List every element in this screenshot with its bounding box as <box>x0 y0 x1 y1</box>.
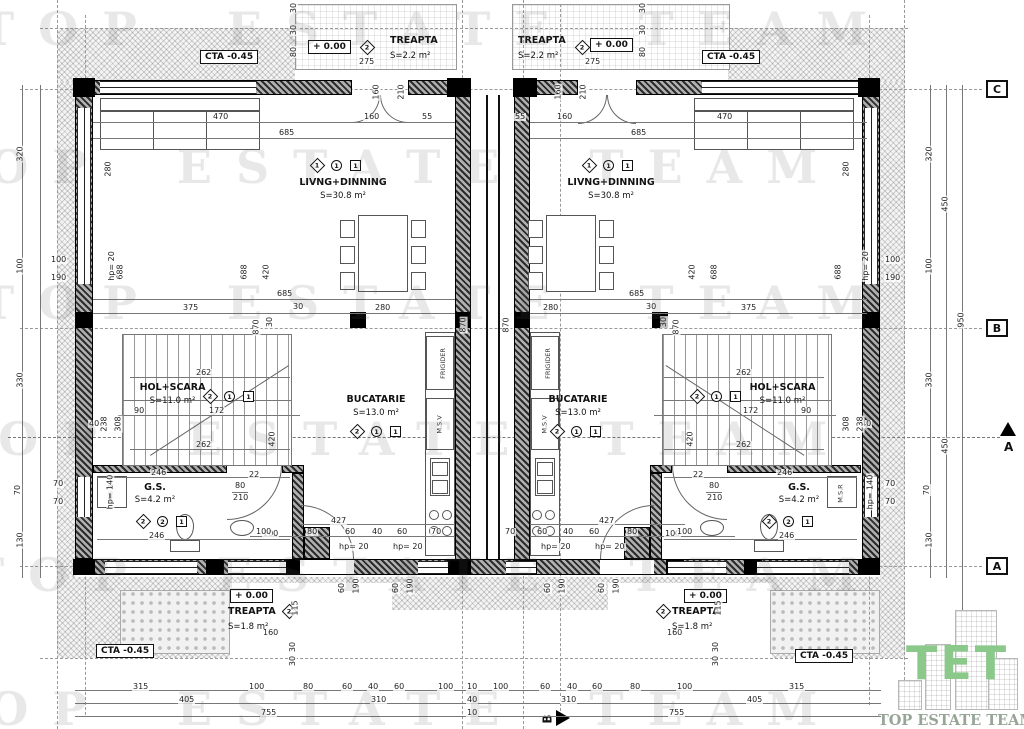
dim: 950 <box>958 311 966 328</box>
room-name-gs: G.S. <box>774 483 824 493</box>
dim: 30 <box>639 2 647 14</box>
dim: 308 <box>115 415 123 432</box>
square-marker: 1 <box>176 516 187 527</box>
chair <box>599 272 614 290</box>
boundary-line <box>40 658 908 659</box>
terrace-paving <box>770 590 880 654</box>
room-name-kitchen: BUCATARIE <box>326 395 426 405</box>
dim: 90 <box>133 407 145 415</box>
column <box>73 559 95 575</box>
room-name-hall: HOL+SCARA <box>735 383 830 393</box>
dim: 30 <box>660 316 668 328</box>
watermark: TOP ESTATE TEAM <box>0 276 891 330</box>
dim: 100 <box>255 528 272 536</box>
dim: 80 <box>234 482 246 490</box>
chair <box>340 272 355 290</box>
section-a-label: A <box>1004 440 1013 454</box>
room-area-living: S=30.8 m² <box>556 192 666 201</box>
chair <box>599 220 614 238</box>
dim: 315 <box>132 683 149 691</box>
dim: 755 <box>668 709 685 717</box>
dim: 60 <box>344 528 356 536</box>
dim: 100 <box>437 683 454 691</box>
dim: 210 <box>706 494 723 502</box>
dim: 70 <box>884 498 896 506</box>
dim: 262 <box>195 369 212 377</box>
sofa-back <box>694 98 854 111</box>
dim: 22 <box>248 471 260 479</box>
diamond-marker: 1 <box>310 158 326 174</box>
square-marker: 1 <box>622 160 633 171</box>
dim: 262 <box>735 441 752 449</box>
dim: 685 <box>628 290 645 298</box>
door-opening <box>300 560 354 574</box>
dim: 22 <box>692 471 704 479</box>
window <box>100 81 256 94</box>
dim: 160 <box>262 629 279 637</box>
room-area-treapta: S=2.2 m² <box>390 52 430 61</box>
window <box>77 477 91 517</box>
washer-label: M.S.R <box>838 484 845 502</box>
dim: 375 <box>182 304 199 312</box>
dim: 55 <box>421 113 433 121</box>
level-label: + 0.00 <box>230 589 273 603</box>
dim: 310 <box>560 696 577 704</box>
dim: 420 <box>269 430 277 447</box>
stove-burner <box>442 510 452 520</box>
room-area-hall: S=11.0 m² <box>735 397 830 406</box>
dim: 688 <box>241 263 249 280</box>
dim: 160 <box>666 629 683 637</box>
dim: 40 <box>88 420 100 428</box>
boundary-line <box>57 0 58 729</box>
diamond-marker: 1 <box>582 158 598 174</box>
dimension-line <box>530 299 867 300</box>
dim: 190 <box>613 577 621 594</box>
dim: 100 <box>676 528 693 536</box>
fridge-label: FRIGIDER <box>545 348 552 379</box>
grid-marker-a: A <box>986 557 1008 575</box>
dim: 870 <box>673 318 681 335</box>
section-a-arrow <box>1000 422 1016 436</box>
window <box>228 561 286 574</box>
dimension-line <box>97 539 290 540</box>
dim: 685 <box>276 290 293 298</box>
dimension-line <box>664 449 824 450</box>
dim: 70 <box>884 480 896 488</box>
window <box>77 108 91 284</box>
dim: 80 <box>629 683 641 691</box>
dimension-line <box>530 536 735 537</box>
dining-table <box>546 215 596 292</box>
section-b-line <box>560 4 561 716</box>
column <box>862 312 880 328</box>
dim: 100 <box>926 257 934 274</box>
section-b-arrow <box>556 710 570 726</box>
dim: 280 <box>843 160 851 177</box>
window <box>418 561 448 574</box>
chair <box>411 220 426 238</box>
column <box>514 312 530 328</box>
circle-marker: 1 <box>571 426 582 437</box>
dim: 280 <box>374 304 391 312</box>
window <box>506 561 536 574</box>
dim: 70 <box>52 498 64 506</box>
window <box>702 81 858 94</box>
room-name-gs: G.S. <box>130 483 180 493</box>
dim: 60 <box>539 683 551 691</box>
dimension-line <box>130 449 290 450</box>
dim: 40 <box>562 528 574 536</box>
dim: 60 <box>396 528 408 536</box>
square-marker: 1 <box>802 516 813 527</box>
circle-marker: 1 <box>371 426 382 437</box>
dim: 30 <box>266 316 274 328</box>
sofa-back <box>100 98 260 111</box>
dim: 160 <box>363 113 380 121</box>
dim: 210 <box>398 83 406 100</box>
dim: hp= 20 <box>392 543 424 551</box>
circle-marker: 2 <box>783 516 794 527</box>
gs-wall <box>282 465 304 473</box>
dim: 60 <box>338 582 346 594</box>
dim: 470 <box>212 113 229 121</box>
dim: 405 <box>746 696 763 704</box>
dim: 100 <box>676 683 693 691</box>
dim: 172 <box>208 407 225 415</box>
dim: 275 <box>584 58 601 66</box>
dim: 55 <box>514 113 526 121</box>
dim: 275 <box>358 58 375 66</box>
dimension-line <box>40 85 41 578</box>
door-opening <box>600 560 654 574</box>
dimension-line <box>530 122 867 123</box>
square-marker: 1 <box>590 426 601 437</box>
dim: 375 <box>740 304 757 312</box>
dim: 30 <box>645 303 657 311</box>
dim: 190 <box>407 577 415 594</box>
dim: 172 <box>742 407 759 415</box>
room-area-kitchen: S=13.0 m² <box>326 409 426 418</box>
dim: 40 <box>466 696 478 704</box>
dim: 450 <box>942 195 950 212</box>
party-wall-line <box>486 95 488 559</box>
dimension-line <box>93 299 455 300</box>
toilet-tank <box>170 540 200 552</box>
dimension-line <box>130 377 290 378</box>
dim: 10 <box>466 683 478 691</box>
dim: 60 <box>598 582 606 594</box>
room-area-gs: S=4.2 m² <box>122 496 188 505</box>
site-hatch <box>57 28 295 82</box>
cta-label: CTA -0.45 <box>96 644 154 658</box>
dimension-line <box>250 536 455 537</box>
column <box>350 312 366 328</box>
sofa <box>100 111 260 150</box>
sink-basin <box>432 462 448 476</box>
dim: 450 <box>942 437 950 454</box>
dimension-line <box>97 477 290 478</box>
dim: 60 <box>591 683 603 691</box>
dim: 115 <box>292 599 300 616</box>
dimension-line <box>118 415 300 416</box>
logo-monogram: TET <box>906 636 1009 690</box>
dim: 160 <box>373 83 381 100</box>
boundary-line <box>40 28 908 29</box>
grid-marker-c: C <box>986 80 1008 98</box>
window <box>668 561 726 574</box>
dim: 246 <box>778 532 795 540</box>
dim: 190 <box>559 577 567 594</box>
room-name-kitchen: BUCATARIE <box>528 395 628 405</box>
dim: 262 <box>735 369 752 377</box>
dim: 40 <box>367 683 379 691</box>
dimension-line <box>530 313 867 314</box>
dim: 100 <box>50 256 67 264</box>
column <box>206 559 224 575</box>
stove-burner <box>429 510 439 520</box>
dim: 70 <box>52 480 64 488</box>
gs-wall <box>650 465 672 473</box>
yard-area <box>392 610 608 658</box>
dim: 330 <box>926 371 934 388</box>
dim: 160 <box>555 83 563 100</box>
dim: 688 <box>711 263 719 280</box>
dim: 30 <box>292 303 304 311</box>
dim: 115 <box>715 599 723 616</box>
square-marker: 1 <box>350 160 361 171</box>
chair <box>411 272 426 290</box>
dim: 100 <box>492 683 509 691</box>
dim: 30 <box>289 655 297 667</box>
dim: 60 <box>588 528 600 536</box>
door-swing <box>607 95 636 124</box>
room-name-living: LIVNG+DINNING <box>288 178 398 188</box>
party-wall-line <box>498 95 500 559</box>
dim: hp= 140 <box>866 474 874 511</box>
circle-marker: 2 <box>157 516 168 527</box>
dimension-line <box>93 138 455 139</box>
dim: 80 <box>302 683 314 691</box>
dim: 80 <box>639 46 647 58</box>
dim: 130 <box>926 531 934 548</box>
dim: 70 <box>923 484 931 496</box>
sink-basin <box>537 462 553 476</box>
square-marker: 1 <box>243 391 254 402</box>
dim: 30 <box>289 641 297 653</box>
column <box>447 559 471 575</box>
chair <box>599 246 614 264</box>
dim: 40 <box>371 528 383 536</box>
dim: 685 <box>630 129 647 137</box>
floor-plan-canvas: FRIGIDER M.S.V FRIGIDER M.S.V M.S.R M.S.… <box>0 0 1024 729</box>
dimension-line <box>664 539 857 540</box>
chair <box>340 246 355 264</box>
boundary-line <box>904 0 905 700</box>
dim: 210 <box>232 494 249 502</box>
washbasin <box>700 520 724 536</box>
dim: 405 <box>178 696 195 704</box>
stove-burner <box>442 526 452 536</box>
dim: 60 <box>536 528 548 536</box>
cta-label: CTA -0.45 <box>795 649 853 663</box>
dim: hp= 20 <box>594 543 626 551</box>
chair <box>411 246 426 264</box>
dining-table <box>358 215 408 292</box>
dim: 238 <box>857 415 865 432</box>
level-label: + 0.00 <box>308 40 351 54</box>
dim: 190 <box>353 577 361 594</box>
stove-burner <box>545 510 555 520</box>
dimension-line <box>664 377 824 378</box>
dim: 30 <box>712 655 720 667</box>
dim: 60 <box>544 582 552 594</box>
room-name-treapta: TREAPTA <box>518 36 566 46</box>
dim: 688 <box>835 263 843 280</box>
dim: 100 <box>17 257 25 274</box>
dim: 308 <box>843 415 851 432</box>
dim: 320 <box>926 145 934 162</box>
dim: 130 <box>17 531 25 548</box>
circle-marker: 1 <box>331 160 342 171</box>
dim: 280 <box>542 304 559 312</box>
logo: TET TOP ESTATE TEAM <box>878 596 1024 729</box>
dim: 246 <box>776 469 793 477</box>
dim: 427 <box>598 517 615 525</box>
room-area-living: S=30.8 m² <box>288 192 398 201</box>
dishwasher-label: M.S.V <box>542 415 549 433</box>
dim: 246 <box>148 532 165 540</box>
dim: 70 <box>504 528 516 536</box>
dim: 70 <box>430 528 442 536</box>
room-name-treapta: TREAPTA <box>228 607 276 617</box>
dim: hp= 20 <box>540 543 572 551</box>
dim: 80 <box>708 482 720 490</box>
dim: hp= 20 <box>108 250 116 282</box>
window <box>105 561 197 574</box>
square-marker: 1 <box>390 426 401 437</box>
dim: 100 <box>884 256 901 264</box>
cta-label: CTA -0.45 <box>200 50 258 64</box>
dim: 315 <box>788 683 805 691</box>
dim: 280 <box>105 160 113 177</box>
dishwasher-label: M.S.V <box>437 415 444 433</box>
circle-marker: 1 <box>711 391 722 402</box>
dim: 870 <box>503 316 511 333</box>
column <box>858 78 880 97</box>
dim: 160 <box>556 113 573 121</box>
dim: 310 <box>370 696 387 704</box>
toilet-tank <box>754 540 784 552</box>
dimension-line <box>300 524 455 525</box>
circle-marker: 1 <box>224 391 235 402</box>
sink-basin <box>432 480 448 494</box>
fridge-label: FRIGIDER <box>440 348 447 379</box>
logo-name: TOP ESTATE TEAM <box>878 712 1024 729</box>
dim: 420 <box>263 263 271 280</box>
sink-basin <box>537 480 553 494</box>
dim: 470 <box>716 113 733 121</box>
column <box>73 78 95 97</box>
dim: 755 <box>260 709 277 717</box>
dim: 60 <box>341 683 353 691</box>
dim: 427 <box>330 517 347 525</box>
circle-marker: 1 <box>603 160 614 171</box>
dim: 420 <box>687 430 695 447</box>
dim: hp= 140 <box>106 474 114 511</box>
dimension-line <box>93 313 455 314</box>
dim: 40 <box>566 683 578 691</box>
square-marker: 1 <box>730 391 741 402</box>
dim: 262 <box>195 441 212 449</box>
dim: 80 <box>626 528 638 536</box>
dim: 60 <box>393 683 405 691</box>
cta-label: CTA -0.45 <box>702 50 760 64</box>
dim: 80 <box>290 46 298 58</box>
room-name-treapta: TREAPTA <box>672 607 720 617</box>
dimension-line <box>962 85 963 670</box>
stove-burner <box>532 510 542 520</box>
chair <box>528 246 543 264</box>
dim: 90 <box>800 407 812 415</box>
level-label: + 0.00 <box>590 38 633 52</box>
column <box>513 78 537 97</box>
chair <box>528 220 543 238</box>
dimension-line <box>530 138 867 139</box>
room-name-treapta: TREAPTA <box>390 36 438 46</box>
dimension-line <box>654 415 836 416</box>
washbasin <box>230 520 254 536</box>
room-area-kitchen: S=13.0 m² <box>528 409 628 418</box>
room-area-gs: S=4.2 m² <box>766 496 832 505</box>
dim: hp= 20 <box>338 543 370 551</box>
dim: hp= 20 <box>862 250 870 282</box>
dim: 190 <box>884 274 901 282</box>
dim: 320 <box>17 145 25 162</box>
dim: 685 <box>278 129 295 137</box>
column <box>858 559 880 575</box>
grid-marker-b: B <box>986 319 1008 337</box>
dim: 330 <box>17 371 25 388</box>
dim: 70 <box>14 484 22 496</box>
dim: 30 <box>712 641 720 653</box>
room-area-treapta: S=2.2 m² <box>518 52 558 61</box>
column <box>75 312 93 328</box>
column <box>447 78 471 97</box>
dim: 210 <box>580 83 588 100</box>
dim: 246 <box>150 469 167 477</box>
dim: 238 <box>101 415 109 432</box>
chair <box>340 220 355 238</box>
dimension-line <box>93 122 455 123</box>
dim: 190 <box>50 274 67 282</box>
gs-wall <box>727 465 861 473</box>
dim: 80 <box>306 528 318 536</box>
dim: 60 <box>392 582 400 594</box>
dimension-line <box>946 85 947 578</box>
dim: 688 <box>117 263 125 280</box>
dim: 100 <box>248 683 265 691</box>
dim: 870 <box>253 318 261 335</box>
dim: 420 <box>689 263 697 280</box>
chair <box>528 272 543 290</box>
diamond-marker: 2 <box>136 514 152 530</box>
room-name-living: LIVNG+DINNING <box>556 178 666 188</box>
dim: 30 <box>290 24 298 36</box>
dim: 870 <box>460 316 468 333</box>
dim: 30 <box>639 24 647 36</box>
dim: 10 <box>466 709 478 717</box>
